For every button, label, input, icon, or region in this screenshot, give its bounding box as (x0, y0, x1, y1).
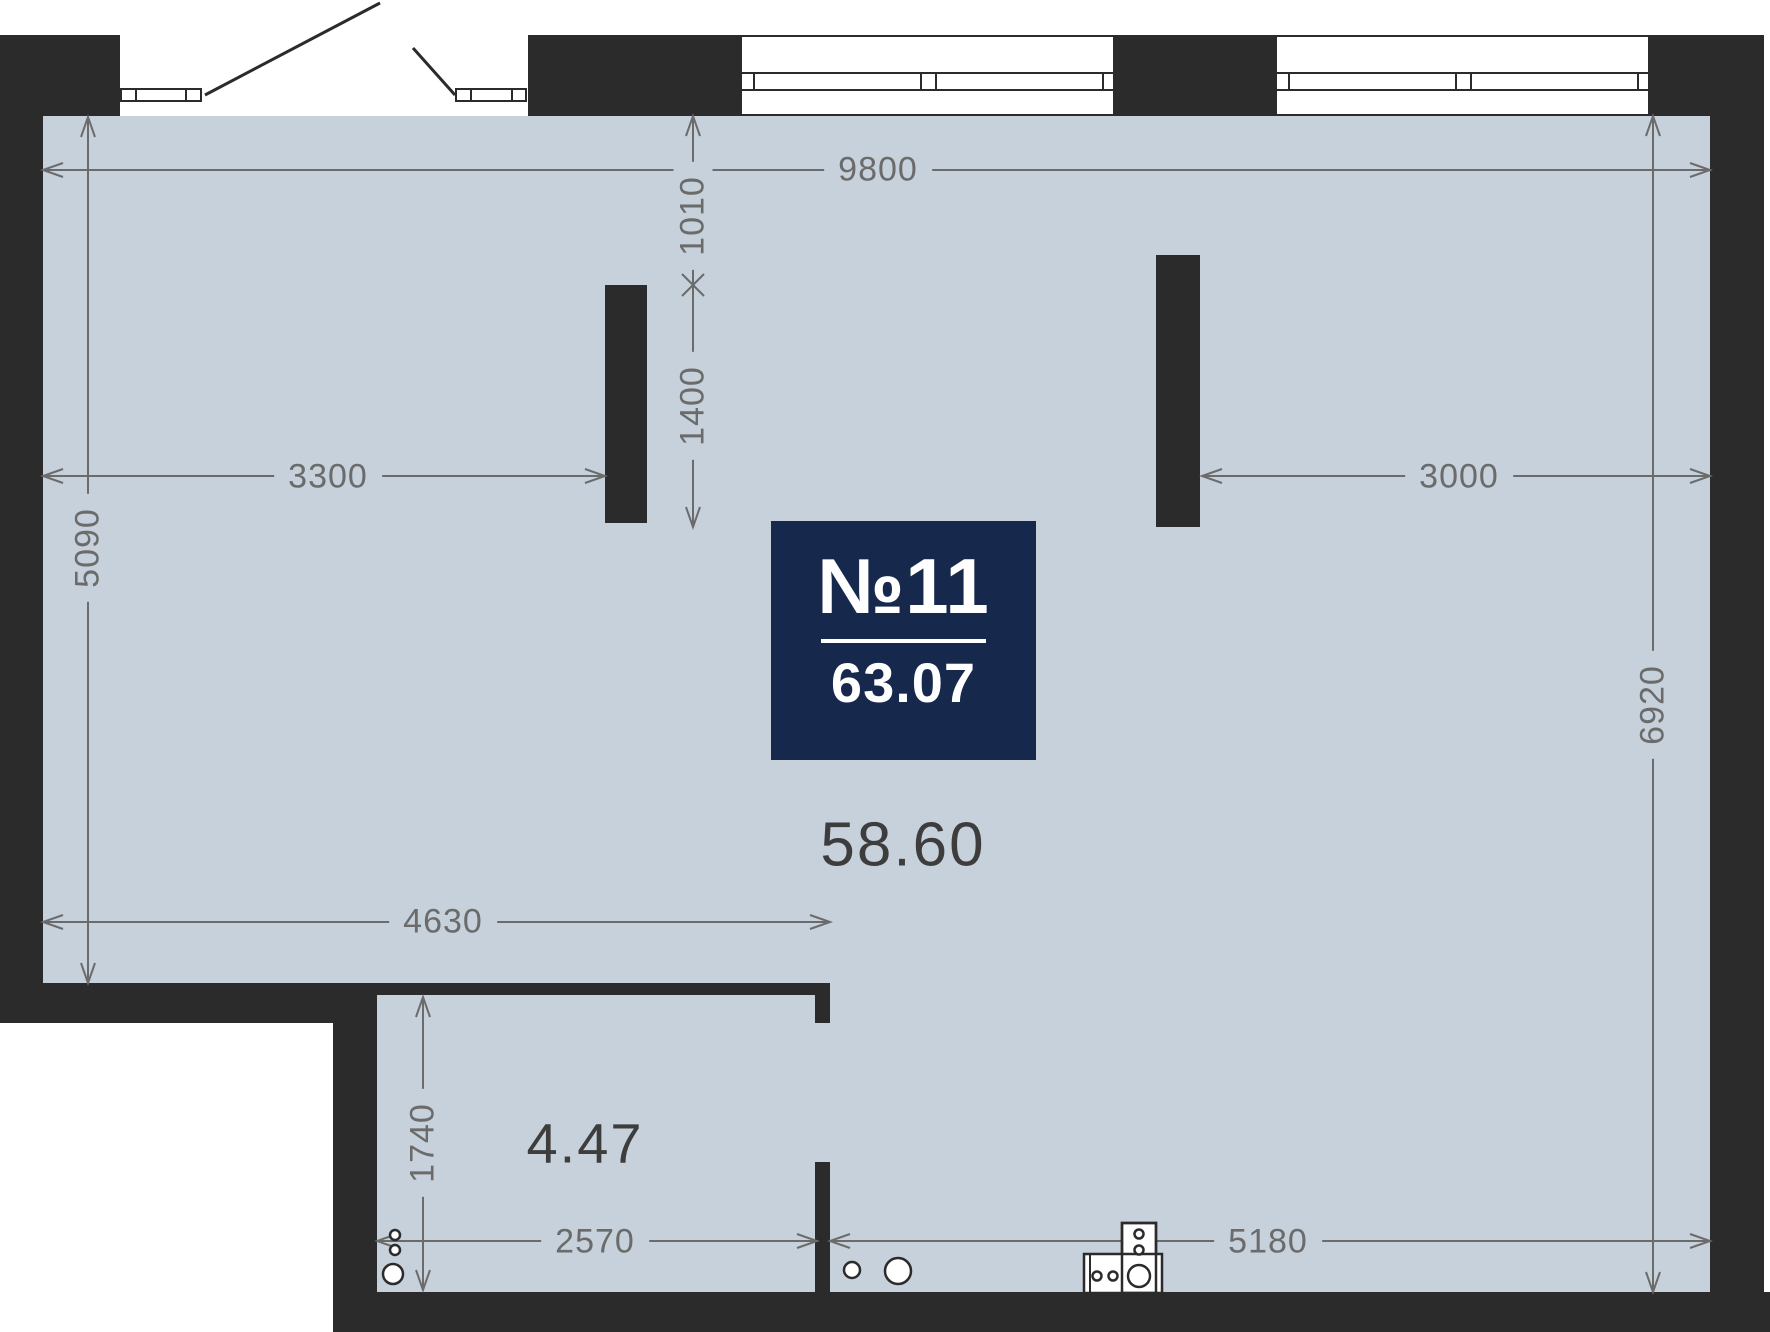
dim-mid-width: 4630 (389, 903, 497, 942)
dim-small-room-height: 1740 (404, 1089, 443, 1197)
main-room-area-label: 58.60 (820, 810, 985, 881)
dim-small-room-width: 2570 (541, 1223, 649, 1262)
dim-top-width: 9800 (824, 151, 932, 190)
dim-left-height: 5090 (69, 494, 108, 602)
dim-right-width: 3000 (1405, 458, 1513, 497)
floor-plan: №11 63.07 (0, 0, 1770, 1332)
dim-left-width: 3300 (274, 458, 382, 497)
dim-pillar-length: 1400 (674, 352, 713, 460)
annotation-layer (0, 0, 1770, 1332)
stove-icon (1084, 1223, 1162, 1293)
small-room-area-label: 4.47 (527, 1111, 644, 1176)
dim-right-height: 6920 (1634, 651, 1673, 759)
door-swing-lines (205, 3, 455, 95)
sink-icon (844, 1258, 911, 1284)
dim-bottom-width: 5180 (1214, 1223, 1322, 1262)
dimension-lines (43, 116, 1710, 1292)
dim-offset-top: 1010 (674, 162, 713, 270)
